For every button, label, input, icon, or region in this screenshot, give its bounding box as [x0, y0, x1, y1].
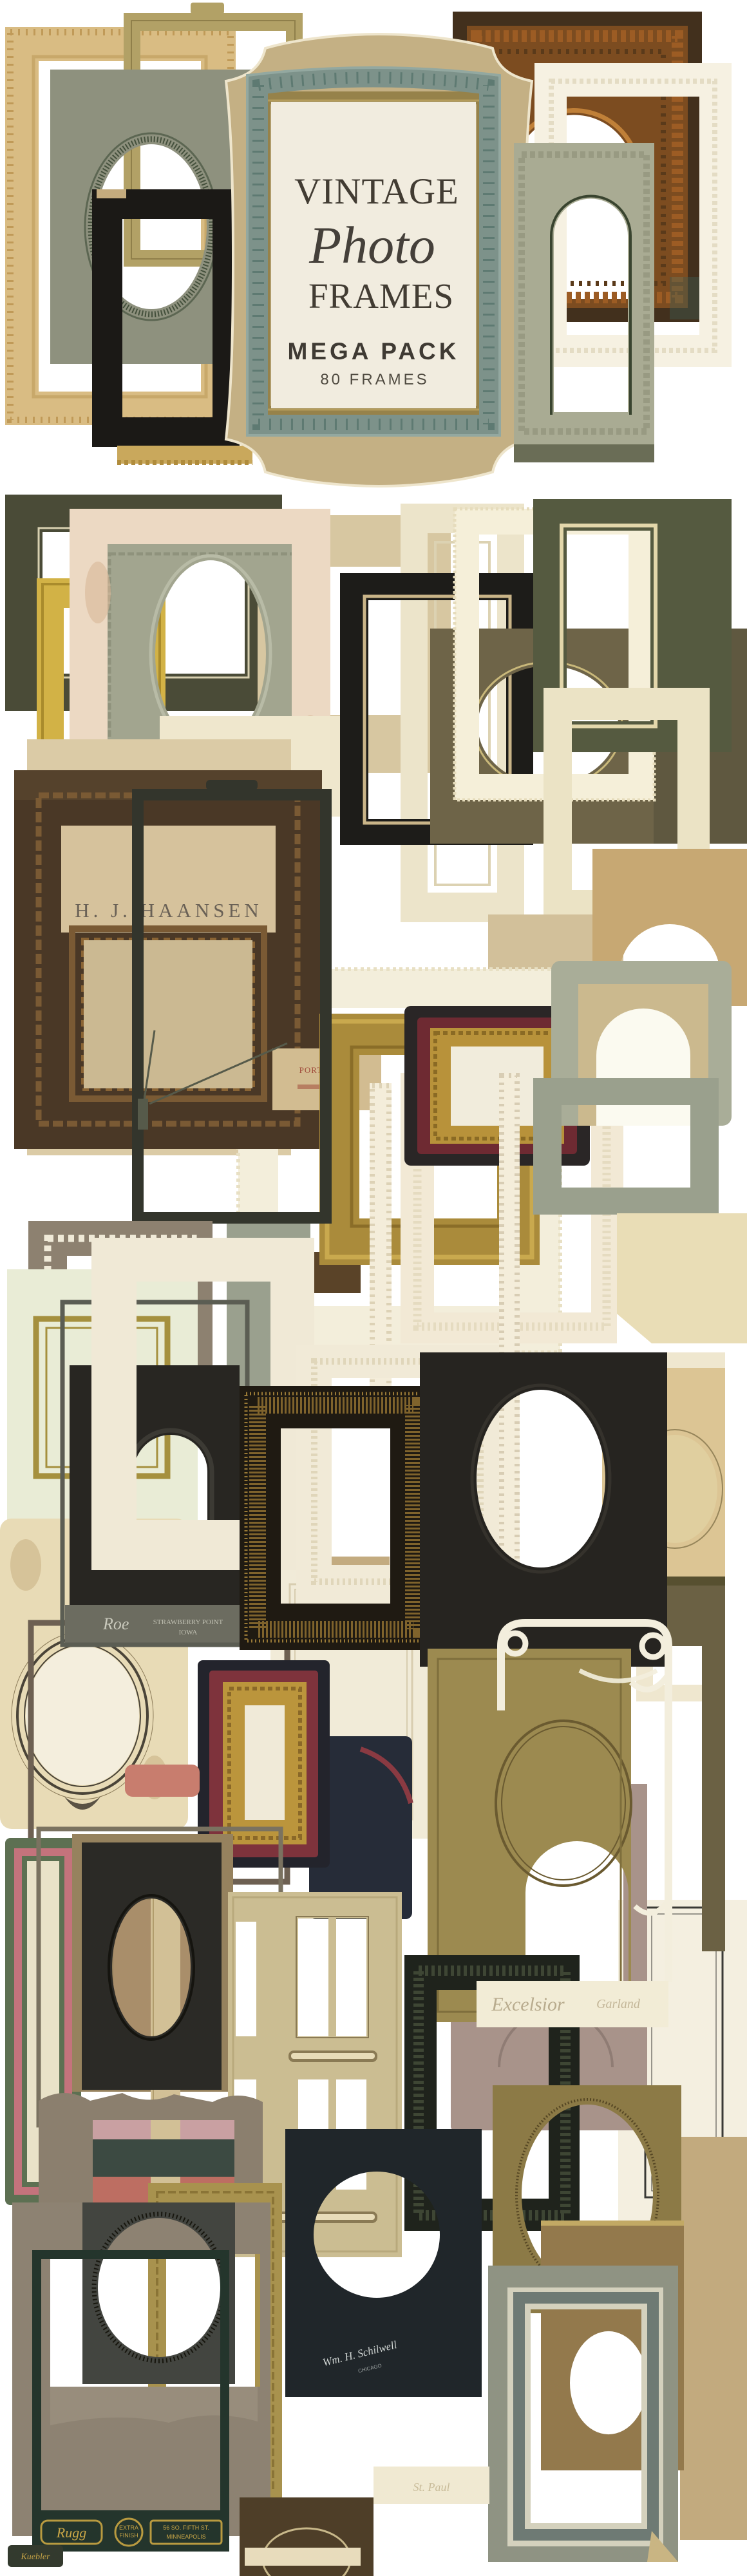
svg-text:Excelsior: Excelsior [491, 1994, 565, 2015]
svg-text:FRAMES: FRAMES [308, 276, 454, 316]
svg-text:EXTRA: EXTRA [119, 2524, 138, 2531]
svg-text:80 FRAMES: 80 FRAMES [320, 371, 429, 388]
svg-text:56 SO. FIFTH ST.: 56 SO. FIFTH ST. [163, 2524, 209, 2531]
svg-text:MEGA PACK: MEGA PACK [288, 338, 460, 365]
svg-text:Kuebler: Kuebler [20, 2552, 50, 2562]
svg-text:Rugg: Rugg [56, 2524, 86, 2541]
svg-text:St. Paul: St. Paul [413, 2481, 450, 2494]
svg-text:STRAWBERRY POINT: STRAWBERRY POINT [153, 1618, 223, 1626]
svg-text:Roe: Roe [102, 1615, 129, 1633]
svg-text:Garland: Garland [596, 1997, 641, 2011]
svg-text:VINTAGE: VINTAGE [294, 171, 459, 212]
svg-text:Photo: Photo [308, 216, 435, 274]
svg-text:FINISH: FINISH [119, 2532, 138, 2539]
svg-text:IOWA: IOWA [179, 1629, 198, 1636]
svg-text:H. J. HAANSEN: H. J. HAANSEN [75, 899, 263, 922]
svg-text:MINNEAPOLIS: MINNEAPOLIS [166, 2533, 206, 2540]
